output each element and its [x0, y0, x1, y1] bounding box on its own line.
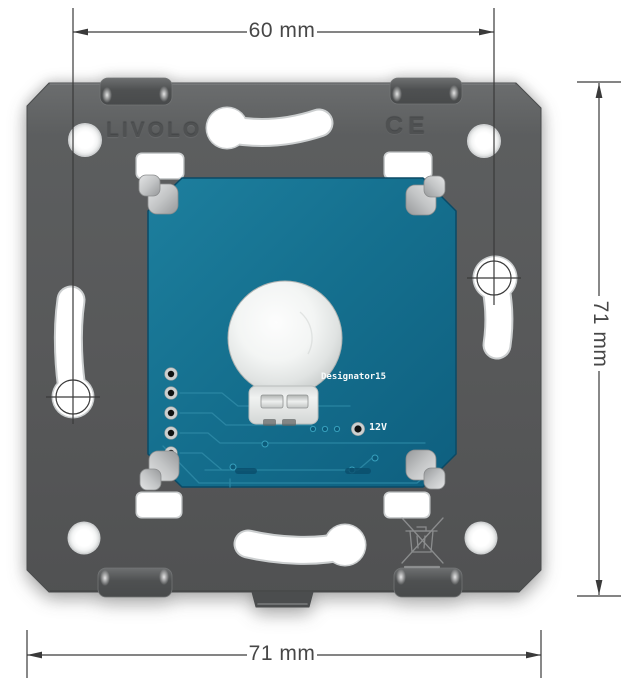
product-dimension-diagram: LIVOLO CE Designator15 12V	[0, 0, 629, 686]
arrowhead-down-icon	[596, 580, 603, 595]
arrowhead-right-icon	[479, 29, 494, 36]
arrowhead-left-icon	[27, 652, 42, 659]
dimension-top	[73, 8, 494, 424]
dimension-label-bottom: 71 mm	[237, 642, 327, 666]
dimension-label-right: 71 mm	[588, 289, 612, 379]
arrowhead-left-icon	[73, 29, 88, 36]
arrowhead-up-icon	[596, 83, 603, 98]
dimension-annotations	[0, 0, 629, 686]
arrowhead-right-icon	[526, 652, 541, 659]
dimension-label-top: 60 mm	[237, 19, 327, 43]
